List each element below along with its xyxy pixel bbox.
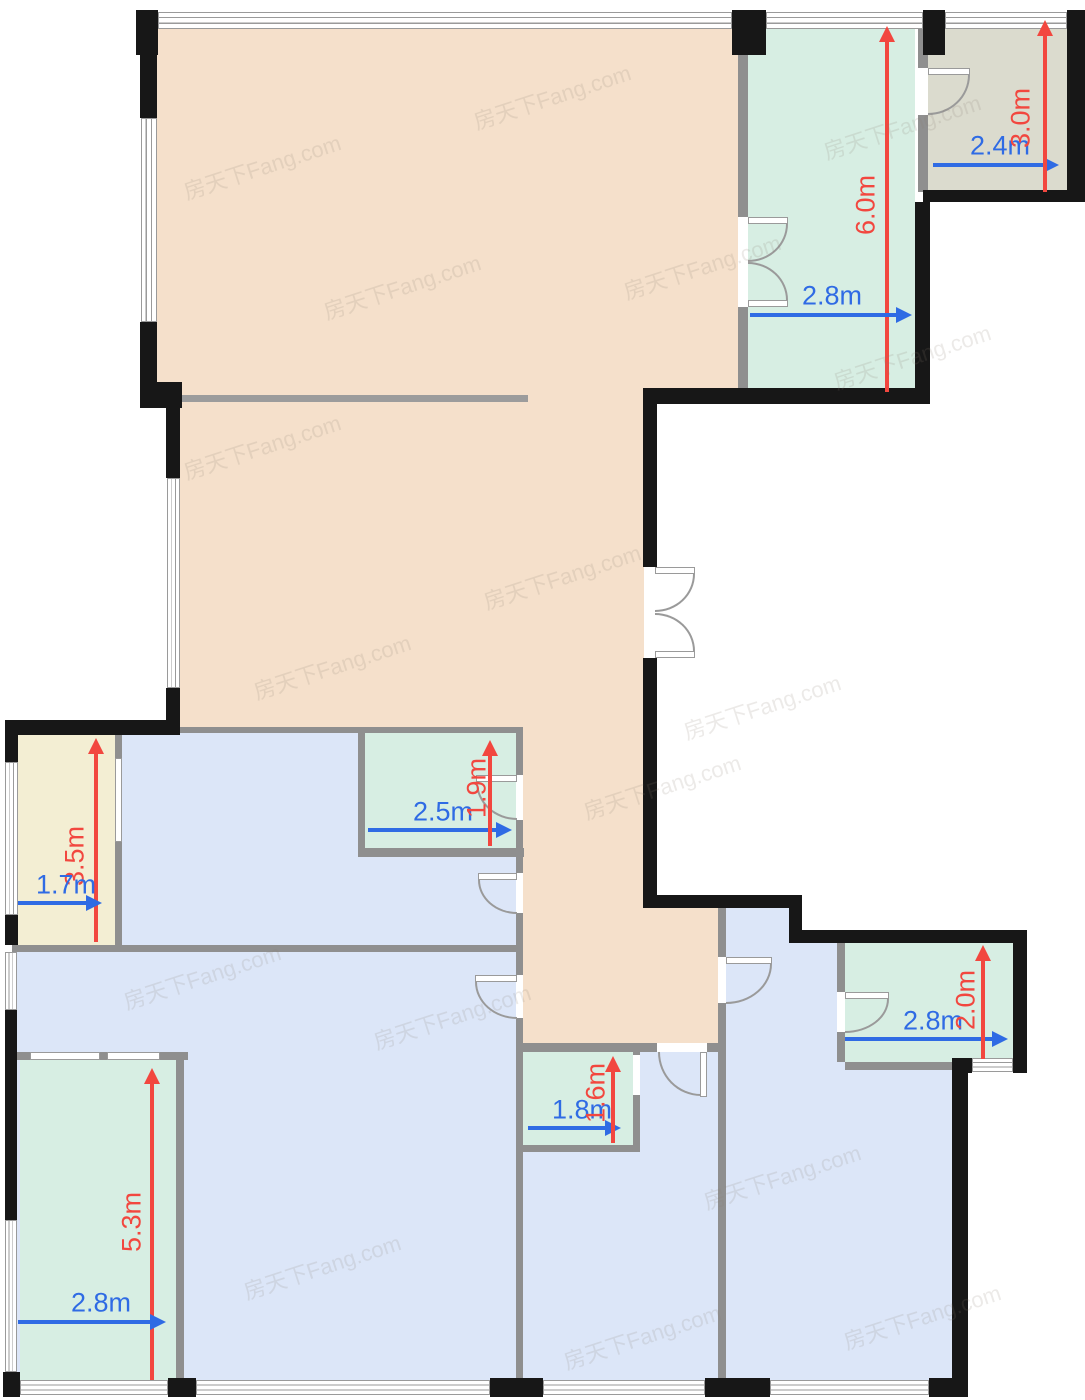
- door-leaf: [475, 975, 517, 982]
- window: [196, 1380, 490, 1395]
- window: [107, 1052, 160, 1060]
- window: [158, 12, 732, 29]
- door-opening: [657, 1043, 707, 1052]
- door-leaf: [726, 957, 772, 964]
- dimension-arrow-line: [885, 42, 889, 392]
- door-leaf: [928, 68, 970, 75]
- wall: [176, 1052, 184, 1378]
- dimension-label: 2.0m: [951, 970, 982, 1030]
- dimension-arrow-line: [18, 1320, 156, 1324]
- wall: [358, 733, 365, 857]
- door-leaf: [845, 992, 889, 999]
- window: [20, 1380, 168, 1395]
- wall: [5, 733, 18, 762]
- wall: [952, 1060, 968, 1397]
- wall: [732, 10, 766, 55]
- wall: [516, 913, 523, 975]
- door-leaf: [748, 217, 788, 224]
- door-opening: [738, 217, 748, 307]
- dimension-label: 2.8m: [71, 1288, 131, 1319]
- dimension-arrow-line: [1043, 36, 1047, 192]
- wall: [718, 903, 726, 957]
- wall: [643, 658, 657, 908]
- wall: [837, 943, 845, 992]
- window: [115, 758, 122, 842]
- dimension-arrow-line: [150, 1082, 154, 1380]
- door-opening: [633, 1055, 640, 1095]
- door-leaf: [655, 651, 695, 658]
- dimension-label: 3.0m: [1006, 88, 1037, 148]
- arrow-up-icon: [482, 740, 498, 756]
- door-opening: [718, 957, 726, 1003]
- window: [5, 1220, 17, 1372]
- door-swing-arc: [655, 613, 695, 651]
- wall: [633, 1095, 640, 1152]
- window: [5, 762, 18, 915]
- wall: [738, 28, 748, 217]
- arrow-up-icon: [144, 1068, 160, 1084]
- wall: [643, 402, 657, 567]
- wall: [490, 1378, 543, 1397]
- wall: [918, 115, 928, 192]
- wall: [1013, 930, 1027, 1073]
- door-opening: [516, 975, 523, 1018]
- door-leaf: [748, 300, 788, 307]
- wall: [12, 945, 516, 952]
- dimension-arrow-line: [611, 1070, 615, 1143]
- wall: [115, 733, 122, 758]
- living-room-area: [150, 20, 740, 402]
- floor-plan: 6.0m 2.8m 2.4m 3.0m 3.5m 1.7m 2.5m 1.9m …: [0, 0, 1085, 1400]
- window: [766, 12, 923, 29]
- arrow-up-icon: [88, 738, 104, 754]
- wall: [707, 1043, 718, 1052]
- dimension-label: 6.0m: [851, 175, 882, 235]
- arrow-up-icon: [975, 945, 991, 961]
- dimension-label: 5.3m: [117, 1192, 148, 1252]
- dimension-arrow-line: [94, 752, 98, 942]
- wall: [166, 402, 180, 478]
- window: [972, 1058, 1013, 1072]
- balcony-top: [748, 24, 915, 388]
- window: [543, 1380, 705, 1395]
- hallway-area: [523, 733, 645, 913]
- arrow-right-icon: [992, 1031, 1008, 1047]
- wall: [523, 1145, 640, 1152]
- wall: [923, 190, 1085, 202]
- wall-open-edge: [150, 395, 528, 402]
- wall: [5, 1010, 17, 1220]
- dimension-arrow-line: [750, 313, 902, 317]
- hallway-area-lower: [523, 908, 722, 1048]
- door-swing-arc: [655, 574, 695, 612]
- door-opening: [516, 873, 523, 913]
- door-leaf: [700, 1052, 707, 1097]
- wall: [915, 202, 930, 400]
- wall: [929, 1378, 968, 1397]
- wall: [643, 895, 802, 908]
- dimension-label: 1.9m: [462, 758, 493, 818]
- window: [770, 1380, 929, 1395]
- dimension-arrow-line: [981, 959, 985, 1059]
- dimension-label: 1.6m: [581, 1063, 612, 1123]
- arrow-right-icon: [496, 822, 512, 838]
- wall: [100, 1052, 107, 1060]
- watermark-text: 房天下Fang.com: [679, 665, 845, 746]
- window: [30, 1052, 100, 1060]
- wall: [115, 842, 122, 945]
- wall: [5, 915, 18, 945]
- wall: [789, 930, 1027, 943]
- window: [141, 118, 157, 322]
- wall: [180, 727, 523, 733]
- dimension-arrow-line: [528, 1126, 611, 1130]
- wall: [168, 1378, 196, 1397]
- wall: [705, 1378, 770, 1397]
- wall: [738, 307, 748, 388]
- door-leaf: [478, 873, 517, 880]
- wall: [516, 727, 523, 775]
- wall: [516, 820, 523, 873]
- arrow-up-icon: [1037, 20, 1053, 36]
- wall: [837, 1032, 845, 1062]
- dining-area: [180, 400, 645, 733]
- door-opening: [837, 992, 845, 1032]
- dimension-arrow-line: [933, 163, 1049, 167]
- dimension-arrow-line: [368, 828, 502, 832]
- dimension-arrow-line: [845, 1037, 998, 1041]
- window: [5, 952, 17, 1010]
- dimension-arrow-line: [18, 901, 92, 905]
- arrow-right-icon: [150, 1314, 166, 1330]
- wall: [140, 322, 157, 384]
- dimension-label: 2.8m: [802, 281, 862, 312]
- wall: [1067, 10, 1085, 202]
- wall: [718, 1003, 726, 1390]
- window: [167, 478, 180, 688]
- wall: [140, 10, 157, 118]
- dimension-label: 1.7m: [36, 870, 96, 901]
- door-leaf: [655, 567, 695, 574]
- arrow-right-icon: [896, 307, 912, 323]
- wall: [633, 1043, 640, 1055]
- wall: [358, 848, 524, 857]
- arrow-up-icon: [879, 26, 895, 42]
- wall: [516, 1018, 523, 1390]
- door-opening: [918, 68, 928, 115]
- wall: [5, 720, 180, 735]
- wall: [923, 10, 945, 55]
- door-opening: [516, 775, 523, 820]
- wall: [3, 1372, 20, 1397]
